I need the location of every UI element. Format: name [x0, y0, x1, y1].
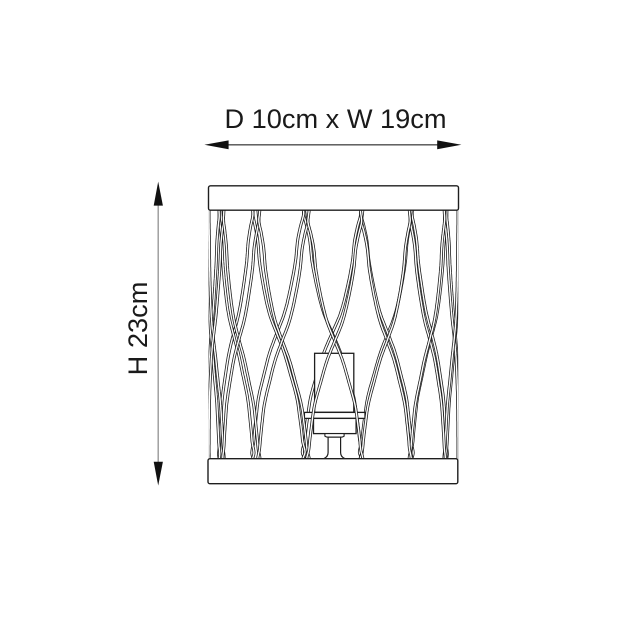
svg-text:H 23cm: H 23cm: [122, 282, 153, 376]
svg-text:D 10cm x W 19cm: D 10cm x W 19cm: [224, 103, 446, 134]
